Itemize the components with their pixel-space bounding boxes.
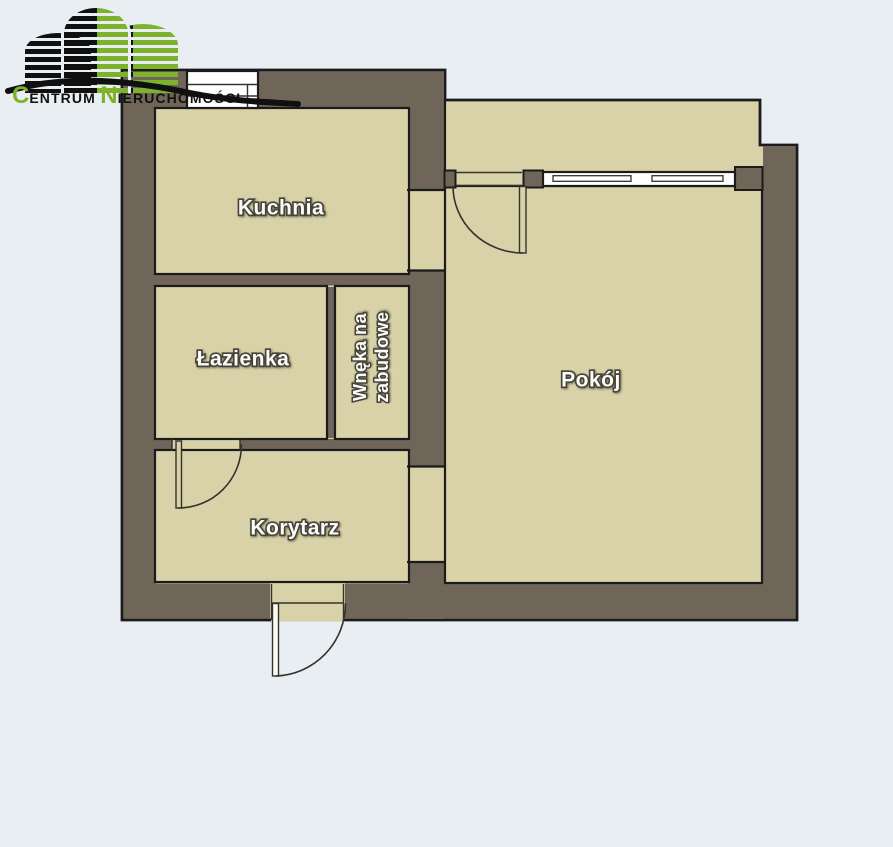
building-outline [122,70,797,620]
label-wneka-line2: zabudowe [372,311,392,402]
wall-bottom-right [345,584,796,619]
label-kuchnia: Kuchnia [238,197,324,220]
wall-middle-mid [408,272,444,466]
balcony-window-glazing-right [652,176,723,182]
label-korytarz: Korytarz [250,517,339,540]
wall-kitchen-bottom [156,275,408,286]
label-pokoj: Pokój [561,369,621,392]
bathroom-door-leaf [176,441,182,508]
label-lazienka: Łazienka [197,348,290,371]
wall-right [763,146,796,619]
wall-corridor-top-right [240,439,408,451]
balcony-door-hinge-post [524,171,544,188]
logo-company-name: CENTRUM NIERUCHOMOŚCI [12,84,241,108]
wall-bottom-left [124,584,271,619]
balcony-window-glazing-left [553,176,631,182]
label-wneka-line1: Wnęka na [350,313,370,402]
floorplan-page: Kuchnia Łazienka Wnęka na zabudowe Koryt… [0,0,893,847]
balcony-door-leaf [520,187,527,254]
balcony-door-jamb [445,171,456,188]
logo-word-entrum: ENTRUM [29,90,95,106]
wall-left [124,72,157,619]
floor-plan-drawing: Kuchnia Łazienka Wnęka na zabudowe Koryt… [0,0,893,847]
entrance-door-leaf [273,604,279,677]
balcony-window-right-stub [735,167,763,190]
wall-corridor-top-left [156,439,172,451]
logo-word-ieruchomosci: IERUCHOMOŚCI [118,90,242,106]
logo-initial-c: C [12,82,29,109]
agency-logo: CENTRUM NIERUCHOMOŚCI [0,0,310,120]
logo-initial-n: N [100,82,117,109]
wall-middle-upper [408,108,444,189]
